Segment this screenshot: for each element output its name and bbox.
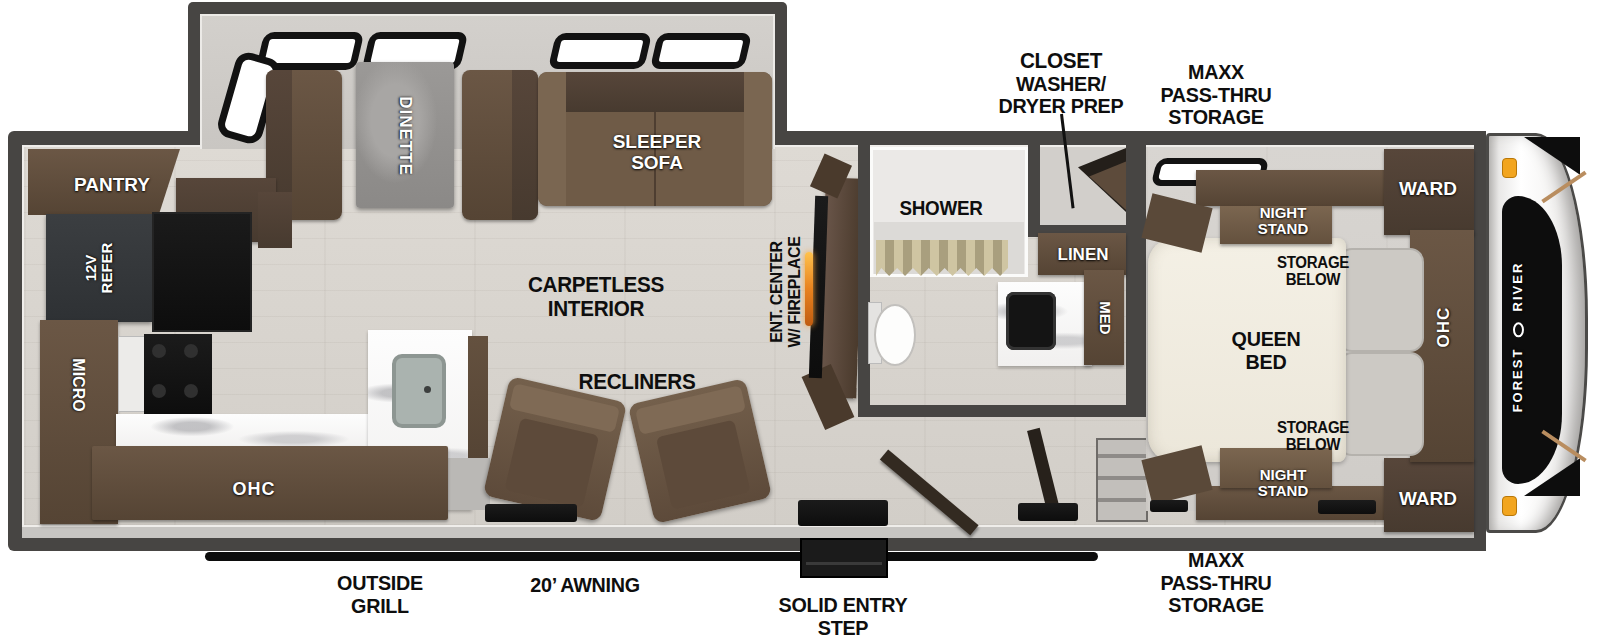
- carpetless-interior-label: CARPETLESS INTERIOR: [528, 273, 664, 321]
- vanity-sink: [1006, 292, 1056, 350]
- entry-step-tread: [806, 562, 882, 565]
- ohc-kitchen-label: OHC: [233, 480, 276, 499]
- outside-grill-line1: OUTSIDE: [337, 572, 423, 595]
- bench-backrest: [512, 70, 538, 220]
- maxx-line1: MAXX: [1160, 549, 1271, 572]
- storage-below-top-label: STORAGE BELOW: [1277, 254, 1349, 289]
- bedroom-mat: [1318, 500, 1376, 514]
- storage-line1: STORAGE: [1277, 419, 1349, 436]
- sofa-armrest: [744, 72, 772, 206]
- maxx-passthru-top-label: MAXX PASS-THRU STORAGE: [1160, 61, 1271, 129]
- queen-bed-label: QUEEN BED: [1232, 328, 1301, 373]
- entry-step-line2: STEP: [779, 617, 908, 640]
- night-stand-line2: STAND: [1258, 483, 1309, 499]
- ward-bottom-label: WARD: [1399, 489, 1457, 510]
- dinette-bench-right: [462, 70, 538, 220]
- bedroom-mat: [1150, 500, 1188, 512]
- maxx-line1: MAXX: [1160, 61, 1271, 84]
- marker-light-bottom: [1502, 496, 1517, 516]
- fireplace-flame-icon: [805, 252, 813, 326]
- marker-light-top: [1502, 158, 1517, 178]
- night-stand-top-label: NIGHT STAND: [1258, 205, 1309, 237]
- kitchen-counter: [116, 414, 370, 450]
- refer-line1: 12V: [83, 243, 99, 294]
- sink-drain-icon: [424, 386, 431, 393]
- maxx-line2: PASS-THRU: [1160, 84, 1271, 107]
- night-stand-line2: STAND: [1258, 221, 1309, 237]
- maxx-line3: STORAGE: [1160, 594, 1271, 617]
- recliners-label: RECLINERS: [579, 370, 696, 394]
- burner-icon: [184, 344, 198, 358]
- awning-line: [205, 552, 1098, 561]
- med-label: MED: [1097, 301, 1113, 334]
- slide-window-icon: [650, 33, 752, 69]
- closet-divider-wall: [1028, 145, 1040, 237]
- storage-line2: BELOW: [1277, 436, 1349, 453]
- bath-bedroom-wall: [1126, 145, 1146, 417]
- maxx-line3: STORAGE: [1160, 106, 1271, 129]
- bottom-sill: [22, 527, 1474, 538]
- shower-label: SHOWER: [900, 198, 983, 220]
- burner-icon: [152, 344, 166, 358]
- sofa-back: [566, 72, 744, 112]
- storage-below-bottom-label: STORAGE BELOW: [1277, 419, 1349, 454]
- floor-mat: [485, 504, 577, 522]
- brand-word-river: RIVER: [1510, 262, 1525, 312]
- slide-window-icon: [548, 33, 652, 69]
- ent-center-line1: ENT. CENTER: [768, 236, 786, 347]
- sofa-armrest: [538, 72, 566, 206]
- queen-bed-line2: BED: [1232, 351, 1301, 374]
- bath-left-wall: [858, 145, 870, 417]
- pantry-label: PANTRY: [74, 175, 150, 196]
- floor-mat: [1018, 503, 1078, 521]
- night-stand-bottom-label: NIGHT STAND: [1258, 467, 1309, 499]
- ent-center-label: ENT. CENTER W/ FIREPLACE: [768, 236, 805, 347]
- appliance-block: [152, 212, 252, 332]
- micro-label: MICRO: [69, 358, 86, 411]
- dinette-label: DINETTE: [396, 96, 414, 176]
- bedroom-steps: [1096, 438, 1148, 522]
- entry-step: [800, 538, 888, 578]
- hall-patch: [446, 458, 490, 510]
- closet-washer-dryer-label: CLOSET WASHER/ DRYER PREP: [999, 49, 1124, 118]
- carpetless-line2: INTERIOR: [528, 297, 664, 321]
- entry-door-mat: [798, 500, 888, 526]
- carpetless-line1: CARPETLESS: [528, 273, 664, 297]
- solid-entry-step-label: SOLID ENTRY STEP: [779, 594, 908, 639]
- kitchen-sink: [392, 354, 446, 428]
- burner-icon: [184, 384, 198, 398]
- awning-label: 20’ AWNING: [530, 574, 639, 597]
- refer-line2: REFER: [99, 243, 115, 294]
- night-stand-line1: NIGHT: [1258, 205, 1309, 221]
- recliner-seat: [656, 420, 751, 510]
- sleeper-sofa-line1: SLEEPER: [613, 132, 702, 153]
- oven-door: [118, 336, 146, 412]
- night-stand-line1: NIGHT: [1258, 467, 1309, 483]
- headboard-pillow: [1338, 352, 1424, 456]
- refer-label: 12V REFER: [83, 243, 115, 294]
- bedroom-ohc-label: OHC: [1435, 307, 1453, 348]
- closet-line1: CLOSET: [999, 49, 1124, 73]
- storage-line2: BELOW: [1277, 271, 1349, 288]
- forest-river-logo-icon: [1513, 322, 1524, 337]
- queen-bed-line1: QUEEN: [1232, 328, 1301, 351]
- floorplan-canvas: FOREST RIVER DINETTE SLEEPER SOFA PANTRY…: [0, 0, 1600, 640]
- storage-line1: STORAGE: [1277, 254, 1349, 271]
- toilet-bowl: [874, 304, 916, 366]
- closet-line2: WASHER/: [999, 73, 1124, 96]
- outside-grill-line2: GRILL: [337, 595, 423, 618]
- maxx-line2: PASS-THRU: [1160, 572, 1271, 595]
- burner-icon: [152, 384, 166, 398]
- brand-word-forest: FOREST: [1510, 348, 1525, 413]
- entry-step-line1: SOLID ENTRY: [779, 594, 908, 617]
- brand-forest-river: FOREST RIVER: [1511, 262, 1525, 413]
- sleeper-sofa-label: SLEEPER SOFA: [613, 132, 702, 173]
- headboard-pillow: [1338, 248, 1424, 352]
- sleeper-sofa-line2: SOFA: [613, 153, 702, 174]
- maxx-passthru-bottom-label: MAXX PASS-THRU STORAGE: [1160, 549, 1271, 617]
- bath-bottom-wall: [858, 405, 1146, 417]
- outside-grill-label: OUTSIDE GRILL: [337, 572, 423, 617]
- ent-center-line2: W/ FIREPLACE: [786, 236, 804, 347]
- linen-label: LINEN: [1058, 246, 1109, 264]
- upper-cabinet: [258, 192, 292, 248]
- recliner-seat: [505, 418, 600, 508]
- ward-top-label: WARD: [1399, 179, 1457, 200]
- cooktop: [144, 334, 212, 416]
